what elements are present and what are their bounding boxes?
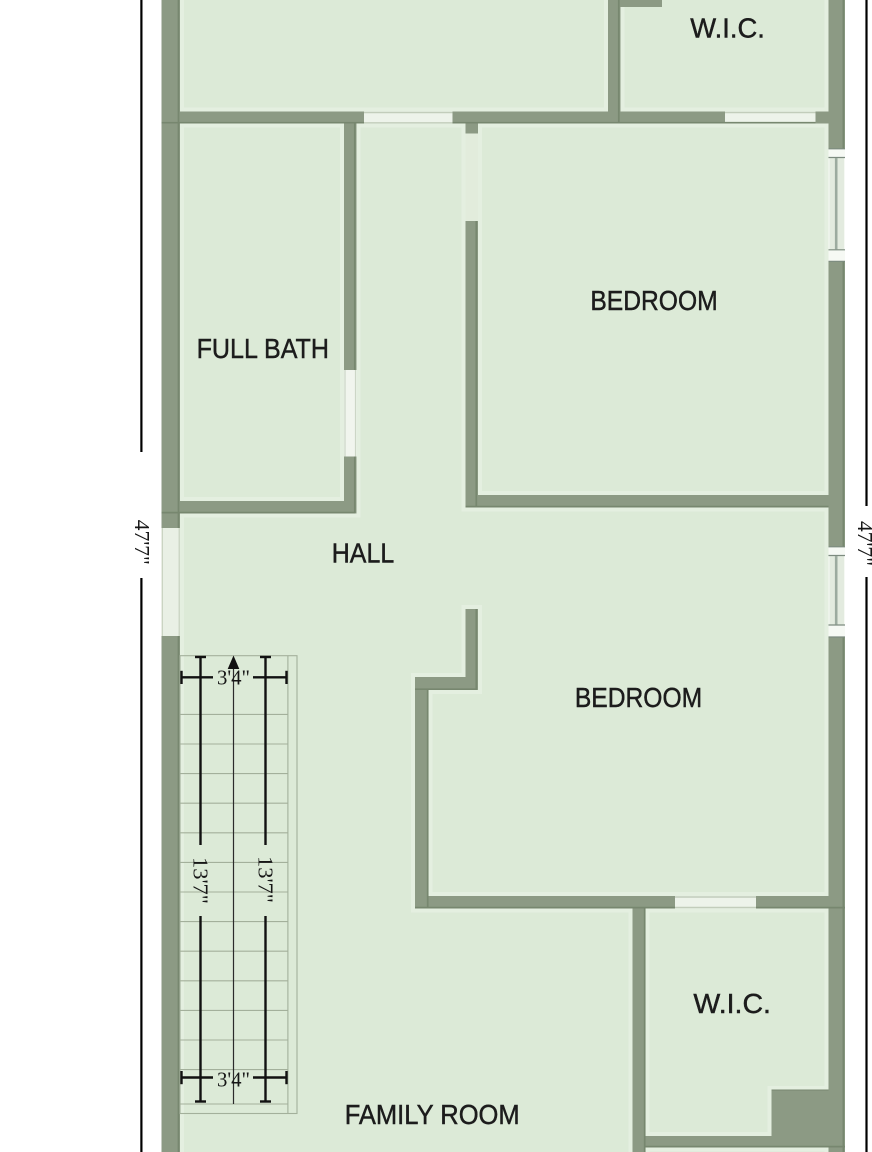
svg-text:W.I.C.: W.I.C.: [690, 13, 765, 44]
svg-text:FULL BATH: FULL BATH: [197, 333, 329, 364]
svg-text:W.I.C.: W.I.C.: [693, 988, 771, 1019]
svg-text:47'7": 47'7": [130, 520, 154, 565]
svg-text:3'4": 3'4": [217, 1068, 250, 1092]
svg-text:13'7": 13'7": [254, 856, 278, 903]
svg-text:BEDROOM: BEDROOM: [590, 285, 717, 316]
svg-text:BEDROOM: BEDROOM: [575, 682, 702, 713]
svg-text:FAMILY ROOM: FAMILY ROOM: [345, 1099, 520, 1130]
svg-text:47'7": 47'7": [853, 521, 872, 566]
svg-text:3'4": 3'4": [217, 666, 250, 690]
svg-text:HALL: HALL: [332, 538, 394, 569]
svg-text:13'7": 13'7": [189, 857, 213, 904]
